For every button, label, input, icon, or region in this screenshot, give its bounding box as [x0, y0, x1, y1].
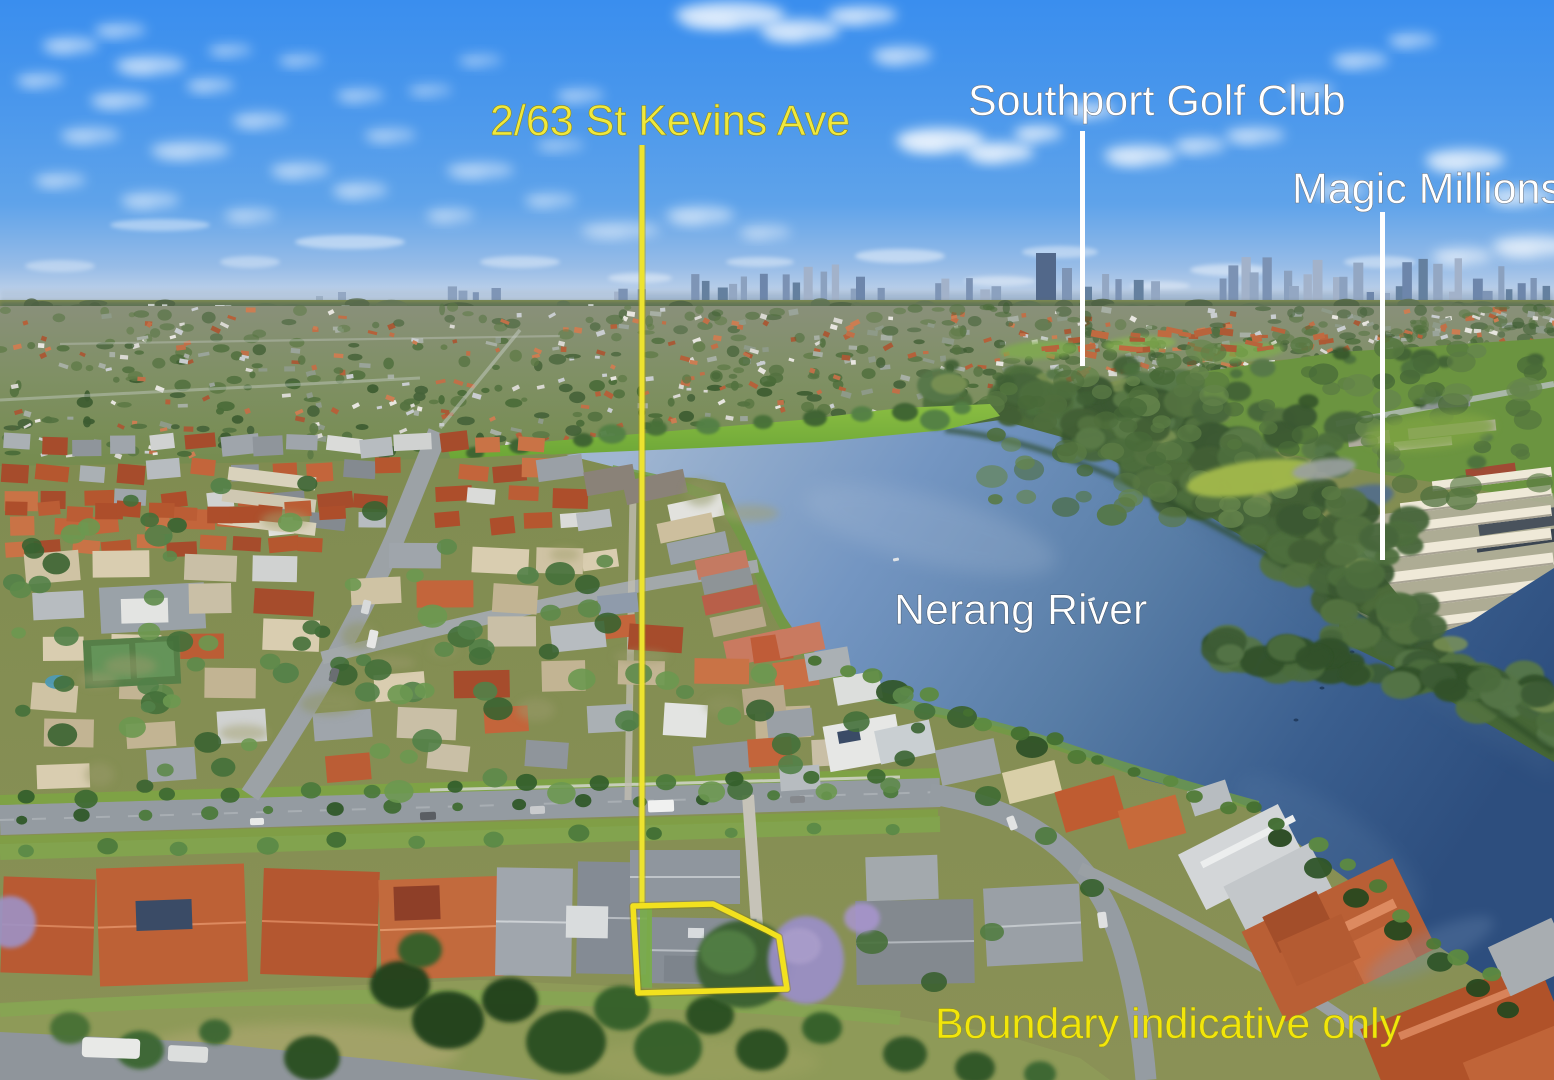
svg-text:Magic Millions: Magic Millions [1292, 165, 1554, 213]
svg-text:Nerang River: Nerang River [894, 586, 1147, 634]
svg-text:Southport Golf Club: Southport Golf Club [968, 77, 1346, 125]
svg-text:Boundary indicative only: Boundary indicative only [935, 1000, 1402, 1048]
svg-text:2/63 St Kevins Ave: 2/63 St Kevins Ave [490, 97, 850, 145]
